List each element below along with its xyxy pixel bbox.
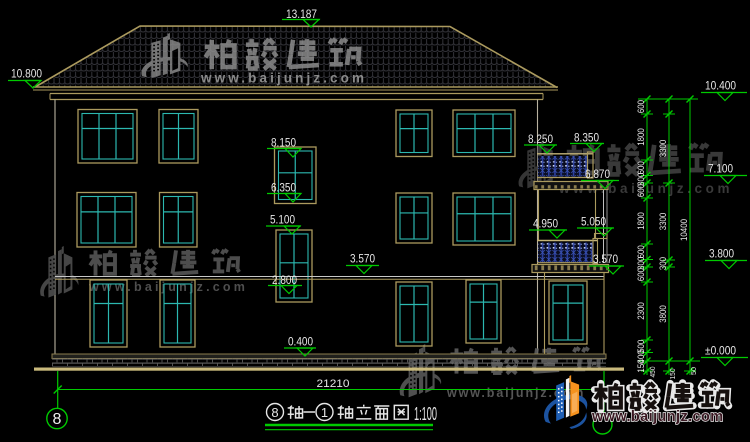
svg-text:300: 300 (658, 257, 668, 270)
svg-text:150: 150 (636, 359, 646, 372)
svg-text:600: 600 (636, 268, 646, 281)
svg-text:8.250: 8.250 (528, 134, 553, 146)
svg-text:600: 600 (636, 161, 646, 174)
svg-text:7.100: 7.100 (708, 164, 733, 176)
svg-text:0.400: 0.400 (288, 337, 313, 349)
svg-text:1800: 1800 (636, 128, 646, 146)
svg-text:3800: 3800 (658, 305, 668, 323)
svg-text:150: 150 (668, 369, 677, 380)
svg-text:4.950: 4.950 (533, 219, 558, 231)
svg-text:www.baijunjz.com: www.baijunjz.com (88, 280, 248, 294)
svg-text:10.800: 10.800 (11, 69, 42, 81)
svg-text:3.570: 3.570 (593, 254, 618, 266)
svg-text:±0.000: ±0.000 (705, 346, 736, 358)
svg-text:1:100: 1:100 (414, 403, 437, 424)
svg-text:8: 8 (53, 411, 62, 428)
svg-text:1800: 1800 (636, 212, 646, 230)
svg-text:6.870: 6.870 (585, 169, 610, 181)
svg-text:450: 450 (648, 367, 657, 378)
svg-text:8.150: 8.150 (271, 138, 296, 150)
svg-text:2300: 2300 (636, 302, 646, 320)
svg-text:5.050: 5.050 (581, 217, 606, 229)
svg-text:21210: 21210 (317, 378, 350, 390)
svg-text:3300: 3300 (658, 140, 668, 158)
svg-text:8: 8 (271, 405, 278, 420)
svg-text:600: 600 (636, 100, 646, 113)
svg-text:3300: 3300 (658, 213, 668, 231)
svg-text:10.400: 10.400 (705, 81, 736, 93)
svg-text:3.570: 3.570 (350, 254, 375, 266)
svg-text:600: 600 (636, 184, 646, 197)
svg-text:5.100: 5.100 (270, 215, 295, 227)
svg-text:6.350: 6.350 (271, 183, 296, 195)
svg-text:www.baijunjz.com: www.baijunjz.com (200, 71, 367, 86)
svg-text:10400: 10400 (679, 219, 689, 241)
svg-text:www.baijunjz.com: www.baijunjz.com (591, 409, 724, 425)
svg-text:50: 50 (689, 367, 698, 375)
svg-text:600: 600 (636, 245, 646, 258)
svg-text:8.350: 8.350 (574, 133, 599, 145)
svg-text:3.800: 3.800 (709, 249, 734, 261)
svg-text:1: 1 (321, 405, 328, 420)
